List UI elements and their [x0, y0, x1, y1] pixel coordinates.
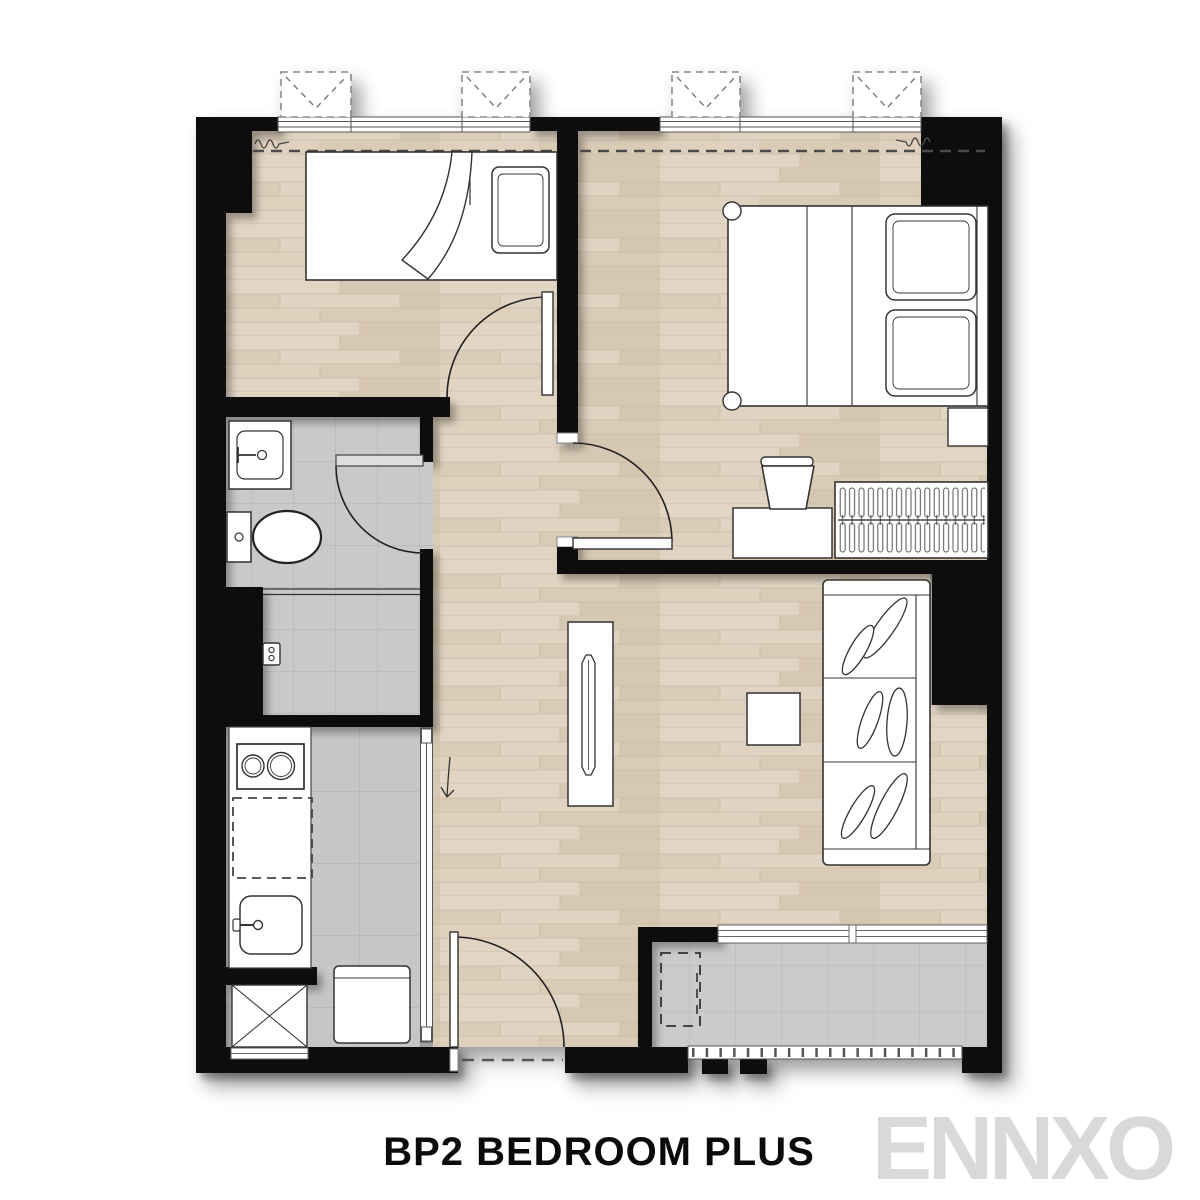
living-floor-strip: [930, 705, 987, 925]
balcony-sliding-door-icon: [718, 925, 987, 943]
wall-bedroom-bottom: [226, 397, 450, 417]
desk-icon: [733, 508, 832, 558]
awning-window-vents: [286, 77, 916, 108]
wall-right-chunk: [932, 560, 1002, 705]
wall-bottom-mid: [565, 1047, 688, 1073]
wall-top-b: [530, 117, 660, 131]
wall-master-jamb-top: [557, 433, 578, 443]
wall-entrance-jamb: [450, 1049, 458, 1071]
chair-icon: [761, 457, 814, 509]
pillow-icon: [492, 167, 549, 253]
wall-corner-bottom-right: [962, 1047, 1002, 1073]
cooktop-icon: [237, 744, 304, 789]
washing-machine-icon: [334, 966, 410, 1043]
wall-balcony-left: [638, 927, 652, 1073]
watermark-logo: ENNXO: [872, 1104, 1172, 1194]
shower-floor: [263, 588, 420, 715]
double-bed-icon: [723, 202, 988, 410]
wall-bathroom-right-lower: [420, 549, 433, 727]
wall-right-upper: [987, 211, 1002, 578]
kitchen-sink-icon: [233, 896, 302, 954]
shaft-x-icon: [232, 985, 307, 1047]
wall-top-a: [226, 117, 281, 131]
nightstand-icon: [948, 408, 988, 446]
wall-balcony-column-a: [702, 1059, 728, 1074]
wall-shaft-block: [196, 587, 263, 717]
toilet-icon: [227, 511, 321, 563]
floor-plan-page: BP2 BEDROOM PLUS ENNXO: [0, 0, 1200, 1200]
wall-master-living: [557, 560, 1002, 574]
bathroom-doorway-gap: [420, 462, 433, 549]
tv-console-icon: [568, 622, 613, 806]
window-band-left: [278, 117, 530, 132]
wall-balcony-column-b: [740, 1059, 767, 1074]
window-band-right: [660, 117, 921, 132]
wall-right-lower: [987, 705, 1002, 1047]
floor-plan-drawing: [0, 0, 1200, 1200]
wall-balcony-top-stub: [640, 927, 720, 942]
wall-kitchen-counter-stub: [226, 967, 317, 985]
balcony-railing-icon: [688, 1046, 962, 1059]
wardrobe-hangers-icon: [835, 482, 988, 558]
wall-shower-bottom: [226, 715, 433, 727]
kitchen-counter: [229, 727, 312, 968]
balcony-floor: [652, 942, 987, 1047]
wall-bedroom-divider: [557, 117, 578, 433]
coffee-table-icon: [747, 693, 800, 745]
shower-mixer-icon: [263, 643, 280, 665]
wall-corner-top-right: [921, 117, 1002, 211]
vanity-sink-icon: [229, 421, 291, 489]
sofa-icon: [823, 580, 930, 865]
vent-icon: [231, 1048, 308, 1059]
awning-window-icon: [281, 72, 921, 117]
single-bed-icon: [306, 152, 557, 280]
